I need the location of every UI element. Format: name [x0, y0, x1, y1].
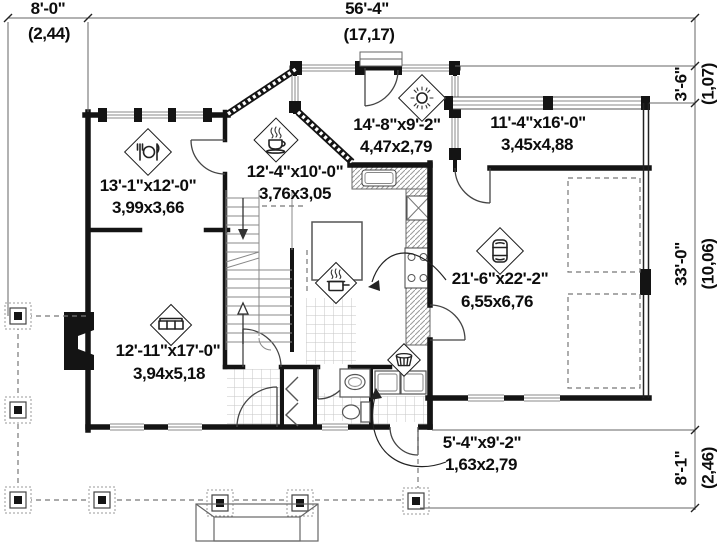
breakfast-room-size-imperial: 12'-4"x10'-0" — [247, 163, 344, 180]
floor-plan: 8'-0" (2,44) 56'-4" (17,17) 3'-6" (1,07)… — [0, 0, 720, 542]
sofa-icon — [151, 305, 191, 345]
dim-right-bot-metric: (2,46) — [700, 447, 717, 489]
dining-icon — [128, 132, 168, 172]
closet-doors — [286, 377, 298, 426]
garage-door-overhead-2 — [568, 294, 640, 388]
garage-doors — [444, 96, 650, 110]
kitchen-symbol — [321, 268, 351, 298]
bonus-room-size-imperial: 11'-4"x16'-0" — [490, 114, 586, 131]
dim-right-bot-imperial: 8'-1" — [673, 451, 690, 486]
living-room-size-metric: 3,94x5,18 — [133, 365, 205, 382]
bathroom-fixtures — [340, 369, 370, 422]
bonus-room-size-metric: 3,45x4,88 — [501, 136, 573, 153]
garage-size-metric: 6,55x6,76 — [461, 293, 533, 310]
stove — [405, 248, 430, 288]
garage-door-overhead-1 — [568, 178, 640, 272]
laundry-size-imperial: 5'-4"x9'-2" — [443, 434, 521, 451]
foyer-window — [322, 421, 348, 433]
sunroom-symbol — [405, 81, 439, 115]
dishwasher — [407, 196, 430, 220]
stairs-up-arrow — [238, 303, 248, 314]
breakfast-room-symbol — [260, 124, 292, 156]
breakfast-room-size-metric: 3,76x3,05 — [259, 185, 331, 202]
dining-room-symbol — [131, 135, 165, 169]
sunroom-size-metric: 4,47x2,79 — [360, 138, 432, 155]
toilet-tank — [361, 402, 370, 422]
garage-symbol — [483, 234, 517, 268]
sunroom-size-imperial: 14'-8"x9'-2" — [353, 116, 440, 133]
stairs — [226, 190, 292, 350]
dim-right-mid-metric: (10,06) — [700, 238, 717, 289]
coffee-cup-icon — [256, 120, 296, 160]
dim-right-mid-imperial: 33'-0" — [673, 242, 690, 286]
dining-window — [98, 108, 212, 122]
garage-side-wall — [640, 103, 651, 398]
floor-plan-drawing — [0, 0, 720, 542]
mudroom-symbol — [392, 348, 416, 372]
laundry-size-metric: 1,63x2,79 — [445, 456, 517, 473]
dining-room-size-metric: 3,99x3,66 — [112, 199, 184, 216]
dim-right-top-metric: (1,07) — [700, 63, 717, 105]
toilet-bowl — [343, 405, 360, 419]
dim-top-width-metric: (17,17) — [343, 26, 394, 43]
dim-right-top-imperial: 3'-6" — [673, 67, 690, 102]
laundry-basket-icon — [387, 343, 421, 377]
dim-top-left-imperial: 8'-0" — [31, 0, 66, 17]
living-room-symbol — [156, 310, 186, 340]
car-icon — [480, 231, 520, 271]
dim-top-width-imperial: 56'-4" — [345, 0, 389, 17]
pot-icon — [316, 263, 356, 303]
dim-top-left-metric: (2,44) — [28, 25, 70, 42]
sun-icon — [402, 78, 442, 118]
dining-room-size-imperial: 13'-1"x12'-0" — [100, 177, 197, 194]
rear-deck — [360, 52, 402, 66]
